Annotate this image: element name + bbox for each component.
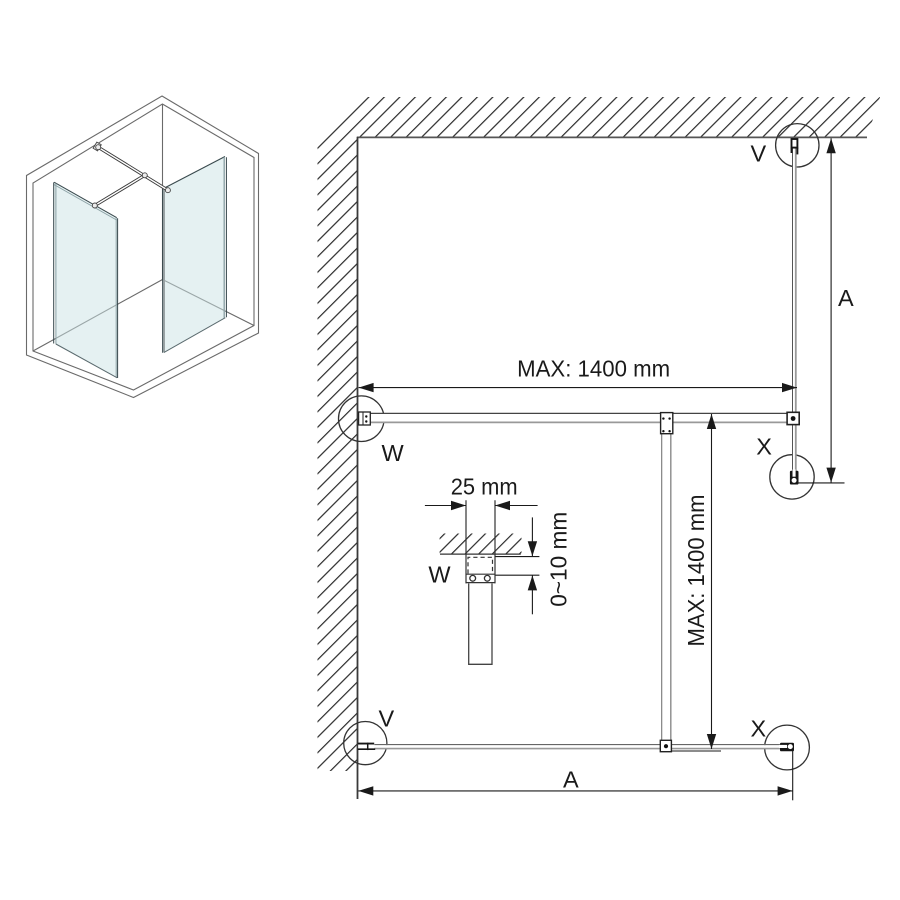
svg-text:MAX: 1400 mm: MAX: 1400 mm [517,356,670,382]
svg-text:V: V [379,706,395,732]
svg-text:25 mm: 25 mm [451,473,518,499]
svg-text:A: A [563,766,579,792]
svg-text:X: X [751,716,767,742]
svg-text:V: V [751,141,767,167]
svg-text:0~10 mm: 0~10 mm [546,512,572,607]
svg-text:X: X [756,434,772,460]
svg-text:A: A [838,285,854,311]
svg-text:MAX: 1400 mm: MAX: 1400 mm [683,495,709,647]
svg-text:W: W [428,561,451,587]
svg-text:W: W [382,440,405,466]
